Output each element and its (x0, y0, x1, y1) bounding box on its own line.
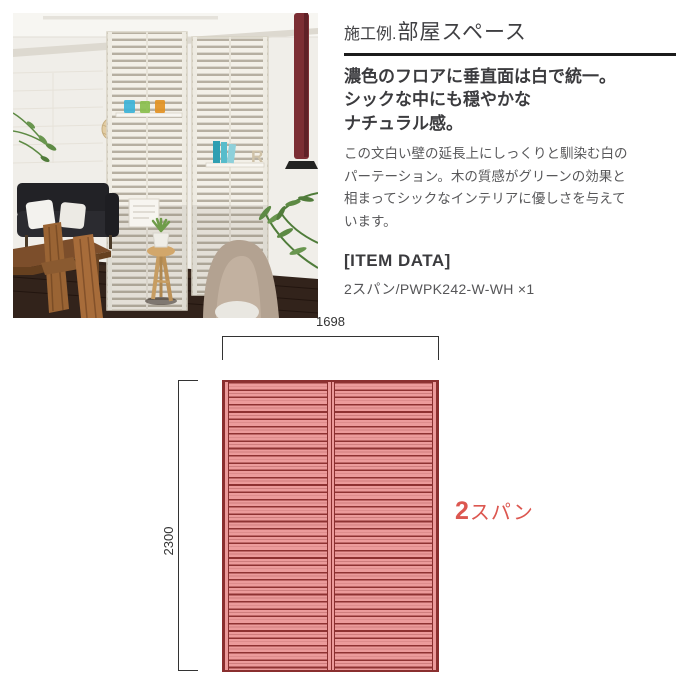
panel-center-post (327, 382, 335, 670)
louver-partition-left (107, 32, 187, 310)
title-main: 部屋スペース (397, 16, 526, 46)
green-glass (140, 101, 150, 113)
body-line: 相まってシックなインテリアに優しさを与えて (344, 188, 676, 211)
book (221, 142, 227, 163)
headline: 濃色のフロアに垂直面は白で統一。 シックな中にも穏やかな ナチュラル感。 (344, 65, 676, 135)
item-data-line: 2スパン/PWPK242-W-WH ×1 (344, 279, 676, 299)
width-dimension-line (222, 336, 439, 360)
height-dimension-label: 2300 (161, 511, 177, 571)
orange-glass (155, 100, 165, 113)
width-dimension-label: 1698 (222, 314, 439, 329)
panel-slats-left-span (229, 382, 327, 670)
body-line: パーテーション。木の質感がグリーンの効果と (344, 166, 676, 189)
white-pillow (59, 202, 86, 229)
span-count-label: 2スパン (455, 496, 534, 526)
product-example-page: R (0, 0, 680, 680)
article-column: 施工例. 部屋スペース 濃色のフロアに垂直面は白で統一。 シックな中にも穏やかな… (344, 16, 676, 299)
panel-right-post (432, 382, 437, 670)
panel-slats-right-span (335, 382, 433, 670)
title-prefix: 施工例. (344, 20, 396, 44)
partition-panel-drawing (222, 380, 439, 672)
headline-line: ナチュラル感。 (344, 112, 676, 135)
title-underline (344, 53, 676, 56)
body-line: この文白い壁の延長上にしっくりと馴染む白の (344, 143, 676, 166)
room-photo: R (13, 13, 318, 318)
blue-glass (124, 100, 135, 113)
body-line: います。 (344, 211, 676, 234)
item-data-heading: [ITEM DATA] (344, 251, 676, 271)
body-text: この文白い壁の延長上にしっくりと馴染む白の パーテーション。木の質感がグリーンの… (344, 143, 676, 233)
headline-line: 濃色のフロアに垂直面は白で統一。 (344, 65, 676, 88)
page-title: 施工例. 部屋スペース (344, 16, 676, 46)
letter-r-ornament: R (251, 147, 263, 166)
book (213, 141, 220, 163)
white-pot (153, 233, 169, 247)
headline-line: シックな中にも穏やかな (344, 88, 676, 111)
room-photo-illustration: R (13, 13, 318, 318)
height-dimension-line (178, 380, 198, 671)
